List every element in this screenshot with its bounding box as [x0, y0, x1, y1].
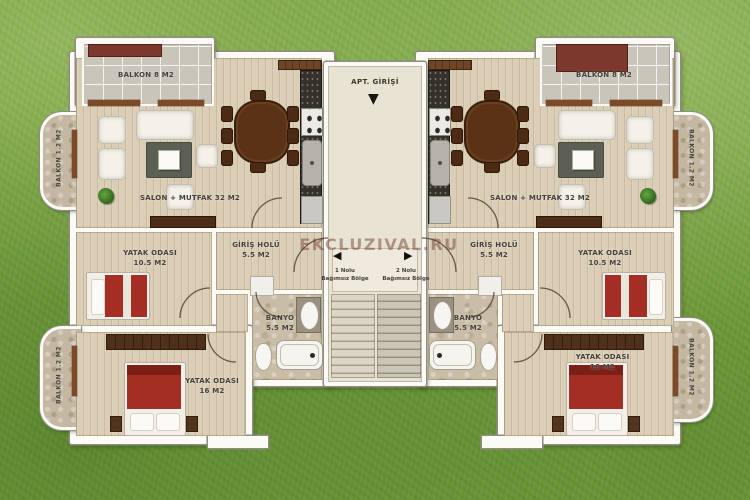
dining-chair — [287, 128, 299, 144]
balcony-door-sill-left-b — [158, 100, 204, 106]
dining-chair — [517, 106, 529, 122]
dining-chair — [221, 128, 233, 144]
ottoman-left — [196, 144, 218, 168]
dining-chair — [517, 128, 529, 144]
dining-table-left — [234, 100, 290, 164]
balcony-door-sill-right-b — [546, 100, 592, 106]
pillow — [130, 413, 154, 431]
tv-console-right — [536, 216, 602, 228]
fridge-right — [429, 196, 451, 224]
coffee-table-left — [158, 150, 180, 170]
awning-left — [88, 44, 162, 57]
window-sill-left-bottom — [72, 346, 77, 396]
label-balcony-right: BALKON 8 M2 — [554, 70, 654, 80]
pillow — [156, 413, 180, 431]
ottoman-right — [534, 144, 556, 168]
plant-right — [640, 188, 656, 204]
nightstand — [110, 416, 122, 432]
label-balcony-left: BALKON 8 M2 — [96, 70, 196, 80]
dining-chair — [517, 150, 529, 166]
window-sill-right-bottom — [673, 346, 678, 396]
drain — [437, 353, 442, 358]
zone-left-line2: Bağımsız Bölge — [317, 275, 373, 283]
bathroom-cabinet-left — [250, 276, 274, 296]
stairs-left-flight — [331, 294, 375, 378]
corridor-right — [502, 294, 534, 332]
bathroom-cabinet-right — [478, 276, 502, 296]
wall-bump-right — [482, 436, 542, 448]
kitchen-sink-left — [302, 140, 322, 186]
coffee-table-right — [572, 150, 594, 170]
tv-console-left — [150, 216, 216, 228]
stairs-right-flight — [377, 294, 421, 378]
bed-single-left — [86, 272, 150, 320]
label-bedroom2-right: YATAK ODASI 16 M2 — [560, 352, 645, 372]
fridge-left — [301, 196, 323, 224]
bathroom-sink-left — [300, 301, 319, 330]
label-bathroom-left: BANYO 5.5 M2 — [258, 313, 302, 333]
dining-chair — [484, 162, 500, 173]
label-bedroom1-right: YATAK ODASI 10.5 M2 — [555, 248, 655, 268]
room-name: GİRİŞ HOLÜ — [226, 240, 286, 250]
kitchen-sink-right — [430, 140, 450, 186]
dining-chair — [250, 162, 266, 173]
zone-left-line1: 1 Nolu — [317, 267, 373, 275]
label-side-balcony-right-bottom: BALKON 1.2 M2 — [688, 338, 695, 396]
sofa-right — [558, 110, 616, 140]
zone-label-right: 2 Nolu Bağımsız Bölge — [378, 267, 434, 284]
window-sill-right-top — [673, 130, 678, 178]
room-area: 5.5 M2 — [446, 323, 490, 333]
room-name: BANYO — [258, 313, 302, 323]
room-name: YATAK ODASI — [560, 352, 645, 362]
blanket-stripe — [621, 275, 629, 317]
nightstand — [552, 416, 564, 432]
apartment-entrance-label: APT. GİRİŞİ — [335, 78, 415, 86]
room-name: YATAK ODASI — [100, 248, 200, 258]
kitchen-cabinet-right — [428, 60, 472, 70]
balcony-door-sill-left-a — [88, 100, 140, 106]
dining-table-right — [464, 100, 520, 164]
bathtub-left — [276, 340, 323, 370]
label-salon-right: SALON + MUTFAK 32 M2 — [460, 193, 620, 203]
pillow — [91, 279, 105, 315]
label-bathroom-right: BANYO 5.5 M2 — [446, 313, 490, 333]
dining-chair — [451, 150, 463, 166]
bed-single-right — [602, 272, 666, 320]
corridor-left — [216, 294, 248, 332]
room-area: 10.5 M2 — [100, 258, 200, 268]
blanket-dark — [127, 365, 181, 375]
room-name: BANYO — [446, 313, 490, 323]
pillow — [572, 413, 596, 431]
room-name: YATAK ODASI — [170, 376, 254, 386]
zone-right-line2: Bağımsız Bölge — [378, 275, 434, 283]
awning-right — [556, 44, 628, 72]
armchair-right-a — [626, 116, 654, 144]
room-area: 5.5 M2 — [226, 250, 286, 260]
armchair-right-b — [626, 148, 654, 180]
pillow — [598, 413, 622, 431]
label-salon-left: SALON + MUTFAK 32 M2 — [110, 193, 270, 203]
armchair-left-a — [98, 116, 126, 144]
dining-chair — [287, 150, 299, 166]
wardrobe-left — [106, 334, 206, 350]
dining-chair — [250, 90, 266, 101]
entrance-arrow-icon: ▼ — [368, 92, 379, 106]
pillow — [649, 279, 663, 315]
dining-chair — [484, 90, 500, 101]
label-side-balcony-left-top: BALKON 1.2 M2 — [56, 129, 63, 187]
label-bedroom2-left: YATAK ODASI 16 M2 — [170, 376, 254, 396]
label-hall-left: GİRİŞ HOLÜ 5.5 M2 — [226, 240, 286, 260]
toilet-right — [480, 343, 497, 371]
kitchen-cabinet-left — [278, 60, 322, 70]
room-area: 16 M2 — [560, 362, 645, 372]
bed-double-right — [566, 362, 628, 436]
blanket-stripe — [123, 275, 131, 317]
watermark: EKCLUZIVAL.RU — [283, 235, 475, 254]
sofa-left — [136, 110, 194, 140]
room-name: YATAK ODASI — [555, 248, 655, 258]
dining-chair — [287, 106, 299, 122]
dining-chair — [451, 106, 463, 122]
label-side-balcony-left-bottom: BALKON 1.2 M2 — [56, 346, 63, 404]
floor-plan: ◀ ▶ 1 Nolu Bağımsız Bölge 2 Nolu Bağımsı… — [0, 0, 750, 500]
dining-chair — [451, 128, 463, 144]
room-area: 16 M2 — [170, 386, 254, 396]
label-bedroom1-left: YATAK ODASI 10.5 M2 — [100, 248, 200, 268]
dining-chair — [221, 150, 233, 166]
window-sill-left-top — [72, 130, 77, 178]
wardrobe-right — [544, 334, 644, 350]
room-area: 10.5 M2 — [555, 258, 655, 268]
armchair-left-b — [98, 148, 126, 180]
zone-label-left: 1 Nolu Bağımsız Bölge — [317, 267, 373, 284]
blanket — [569, 375, 623, 409]
zone-right-line1: 2 Nolu — [378, 267, 434, 275]
balcony-door-sill-right-a — [610, 100, 662, 106]
stove-left — [301, 108, 323, 136]
bed-double-left — [124, 362, 186, 436]
drain — [310, 353, 315, 358]
nightstand — [628, 416, 640, 432]
bathtub-right — [429, 340, 476, 370]
nightstand — [186, 416, 198, 432]
label-side-balcony-right-top: BALKON 1.2 M2 — [688, 129, 695, 187]
dining-chair — [221, 106, 233, 122]
toilet-left — [255, 343, 272, 371]
wall-bump-left — [208, 436, 268, 448]
room-area: 5.5 M2 — [258, 323, 302, 333]
stove-right — [429, 108, 451, 136]
